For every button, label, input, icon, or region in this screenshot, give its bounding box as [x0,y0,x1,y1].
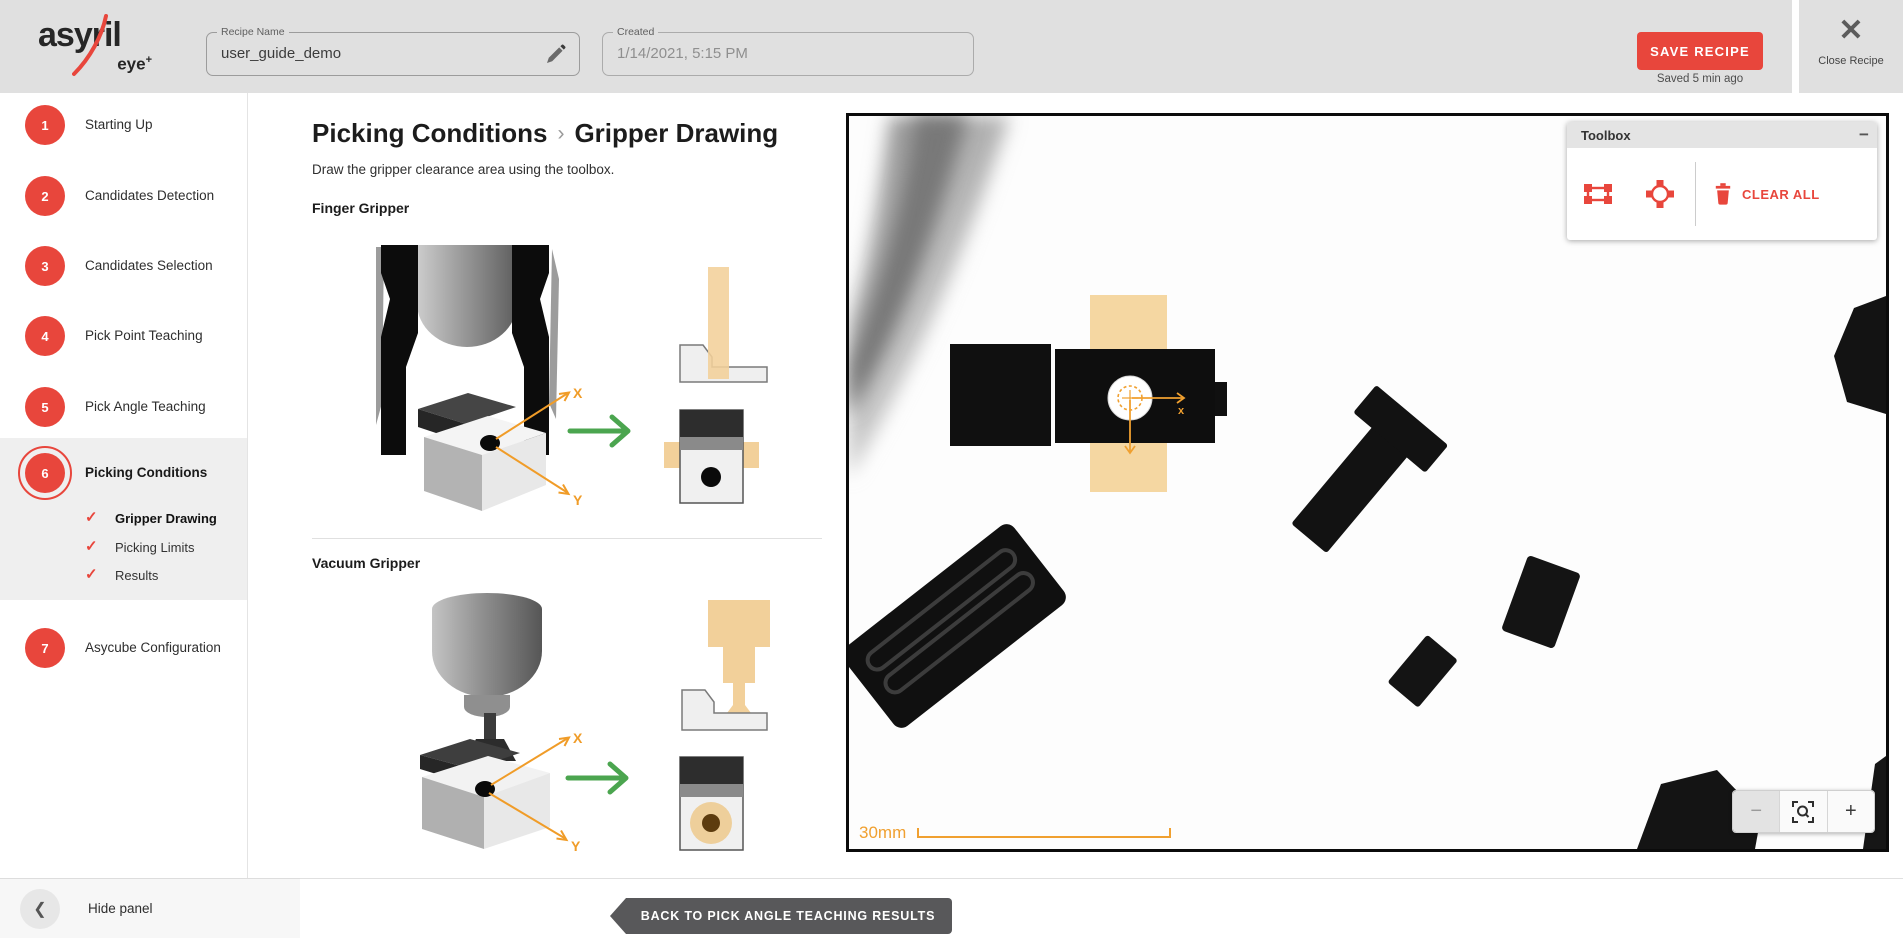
draw-rectangle-tool-button[interactable] [1567,164,1629,224]
brand-product: eye+ [117,54,152,75]
saved-status: Saved 5 min ago [1625,73,1775,85]
marker-x-label: x [1178,405,1185,417]
page-title: Gripper Drawing [574,118,778,148]
breadcrumb: Picking Conditions›Gripper Drawing [312,118,778,149]
close-recipe-label: Close Recipe [1818,55,1883,67]
section-divider [312,538,822,539]
finger-gripper-illustration: X Y [318,245,788,535]
page-subtitle: Draw the gripper clearance area using th… [312,162,614,177]
step-label: Starting Up [85,105,153,145]
step-number-badge: 6 [25,453,65,493]
scale-label: 30mm [859,823,906,842]
asyril-logo: asyril eye+ [38,18,158,82]
arrow-right-icon [568,764,626,792]
hide-panel-label: Hide panel [88,901,153,916]
draw-circle-tool-button[interactable] [1629,164,1691,224]
finger-side-view [680,267,767,382]
y-axis-label: Y [573,492,583,508]
zoom-fit-icon [1792,801,1814,823]
brand-name: asyril [38,18,158,52]
finger-gripper-3d [376,245,559,511]
check-icon: ✓ [85,537,98,555]
step-number-badge: 1 [25,105,65,145]
clear-all-label: CLEAR ALL [1742,187,1820,202]
step-number-badge: 5 [25,387,65,427]
sidebar-step-asycube-configuration[interactable]: 7 Asycube Configuration [0,628,247,668]
step-number-badge: 7 [25,628,65,668]
vacuum-top-view [680,757,743,850]
edit-pencil-icon[interactable] [543,43,567,67]
substep-label: Results [115,564,158,588]
step-label: Pick Point Teaching [85,316,203,356]
minus-icon: − [1750,800,1762,823]
eye-plus-recipe-app: asyril eye+ Recipe Name user_guide_demo … [0,0,1903,938]
sidebar-divider [247,93,248,878]
clear-all-button[interactable]: CLEAR ALL [1714,183,1820,205]
breadcrumb-parent[interactable]: Picking Conditions [312,118,547,148]
vacuum-side-view [682,600,770,730]
finger-gripper-section-title: Finger Gripper [312,200,409,216]
sidebar-step-candidates-selection[interactable]: 3 Candidates Selection [0,246,247,286]
substep-picking-limits[interactable]: ✓ Picking Limits [0,536,247,562]
sidebar-step-picking-conditions[interactable]: 6 Picking Conditions [0,453,247,493]
step-label: Pick Angle Teaching [85,387,206,427]
substep-results[interactable]: ✓ Results [0,564,247,590]
save-recipe-button[interactable]: SAVE RECIPE [1637,32,1763,70]
zoom-fit-button[interactable] [1780,791,1827,832]
zoom-in-button[interactable]: + [1828,791,1874,832]
arrow-right-icon [570,417,628,445]
zoom-out-button[interactable]: − [1733,791,1780,832]
zoom-controls: − + [1732,790,1875,833]
plus-icon: + [1845,800,1857,823]
vacuum-gripper-3d [420,593,550,849]
chevron-left-icon: ❮ [33,899,46,919]
back-button[interactable]: BACK TO PICK ANGLE TEACHING RESULTS [610,898,952,934]
hide-panel-button[interactable]: ❮ [20,889,60,929]
created-date-field: Created 1/14/2021, 5:15 PM [602,32,974,76]
hide-panel-bar: ❮ Hide panel [0,878,300,938]
created-label: Created [613,26,658,38]
step-label: Picking Conditions [85,453,207,493]
check-icon: ✓ [85,508,98,526]
center-part-assembly [950,344,1227,446]
close-recipe-button[interactable]: ✕ Close Recipe [1799,0,1903,93]
vacuum-gripper-section-title: Vacuum Gripper [312,555,420,571]
step-number-badge: 2 [25,176,65,216]
breadcrumb-separator-icon: › [557,122,564,145]
circle-marquee-icon [1646,180,1674,208]
camera-viewport[interactable]: x 30mm Toolbox − [846,113,1889,852]
step-number-badge: 4 [25,316,65,356]
rectangle-marquee-icon [1582,182,1614,206]
footer-bar: BACK TO PICK ANGLE TEACHING RESULTS DEFI… [300,878,1903,938]
step-label: Candidates Selection [85,246,213,286]
substep-gripper-drawing[interactable]: ✓ Gripper Drawing [0,507,247,533]
created-value: 1/14/2021, 5:15 PM [603,33,973,75]
collapse-minus-icon[interactable]: − [1851,122,1877,148]
x-axis-label: X [573,730,583,746]
toolbox-body: CLEAR ALL [1567,148,1877,240]
recipe-name-field[interactable]: Recipe Name user_guide_demo [206,32,580,76]
substep-label: Picking Limits [115,536,194,560]
top-bar: asyril eye+ Recipe Name user_guide_demo … [0,0,1792,93]
substep-label: Gripper Drawing [115,507,217,531]
vacuum-gripper-illustration: X Y [318,575,788,860]
close-icon: ✕ [1838,16,1863,46]
finger-top-view [664,410,759,503]
toolbox-panel: Toolbox − [1567,122,1877,240]
step-label: Candidates Detection [85,176,214,216]
step-label: Asycube Configuration [85,628,221,668]
sidebar-step-pick-point-teaching[interactable]: 4 Pick Point Teaching [0,316,247,356]
y-axis-label: Y [571,838,581,854]
step-number-badge: 3 [25,246,65,286]
trash-icon [1714,183,1732,205]
recipe-name-value: user_guide_demo [207,33,579,75]
toolbox-header[interactable]: Toolbox − [1567,122,1877,148]
check-icon: ✓ [85,565,98,583]
recipe-name-label: Recipe Name [217,26,289,38]
toolbox-separator [1695,162,1696,226]
x-axis-label: X [573,385,583,401]
sidebar-step-starting-up[interactable]: 1 Starting Up [0,105,247,145]
sidebar-step-pick-angle-teaching[interactable]: 5 Pick Angle Teaching [0,387,247,427]
toolbox-title: Toolbox [1581,128,1851,143]
sidebar-step-candidates-detection[interactable]: 2 Candidates Detection [0,176,247,216]
